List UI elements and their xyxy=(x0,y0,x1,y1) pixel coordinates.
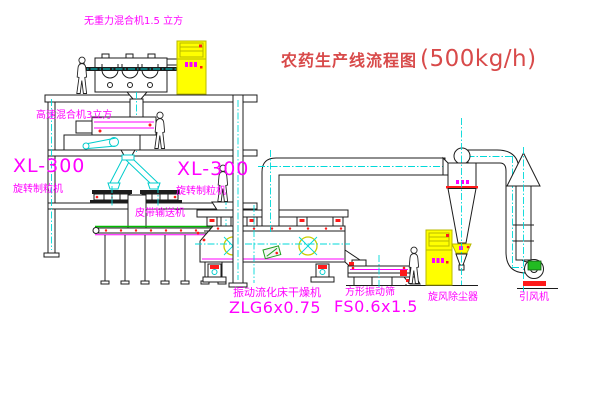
fluid-bed-dryer xyxy=(195,226,360,282)
label-belt-conveyor: 皮带输送机 xyxy=(135,208,185,219)
granulator-1 xyxy=(90,186,134,206)
label-fan: 引风机 xyxy=(519,292,549,303)
label-granulator-left-name: 旋转制粒机 xyxy=(13,184,63,195)
page-title: 农药生产线流程图 (500kg/h) xyxy=(281,46,537,72)
label-dryer-model: ZLG6x0.75 xyxy=(229,299,321,317)
label-high-speed-mixer: 高速混合机3立方 xyxy=(36,110,112,121)
title-text: 农药生产线流程图 xyxy=(281,47,417,71)
label-sieve-model: FS0.6x1.5 xyxy=(334,298,418,316)
label-gravity-mixer: 无重力混合机1.5 立方 xyxy=(84,16,183,27)
person-top-floor xyxy=(77,57,87,93)
control-cabinet-2 xyxy=(426,230,452,285)
label-granulator-center-model: XL-300 xyxy=(177,159,249,180)
label-cyclone: 旋风除尘器 xyxy=(428,292,478,303)
exhaust-duct xyxy=(258,150,458,232)
control-cabinet-1 xyxy=(177,41,206,94)
title-capacity: (500kg/h) xyxy=(420,46,537,72)
label-granulator-left-model: XL-300 xyxy=(13,156,85,177)
diagram-canvas: 无重力混合机1.5 立方 农药生产线流程图 (500kg/h) 高速混合机3立方… xyxy=(0,0,600,403)
y-chute xyxy=(108,155,160,189)
induced-draft-fan xyxy=(523,260,546,287)
label-granulator-center-name: 旋转制粒机 xyxy=(176,186,226,197)
vibrating-sieve xyxy=(348,255,420,290)
dryer-feet xyxy=(203,264,334,282)
